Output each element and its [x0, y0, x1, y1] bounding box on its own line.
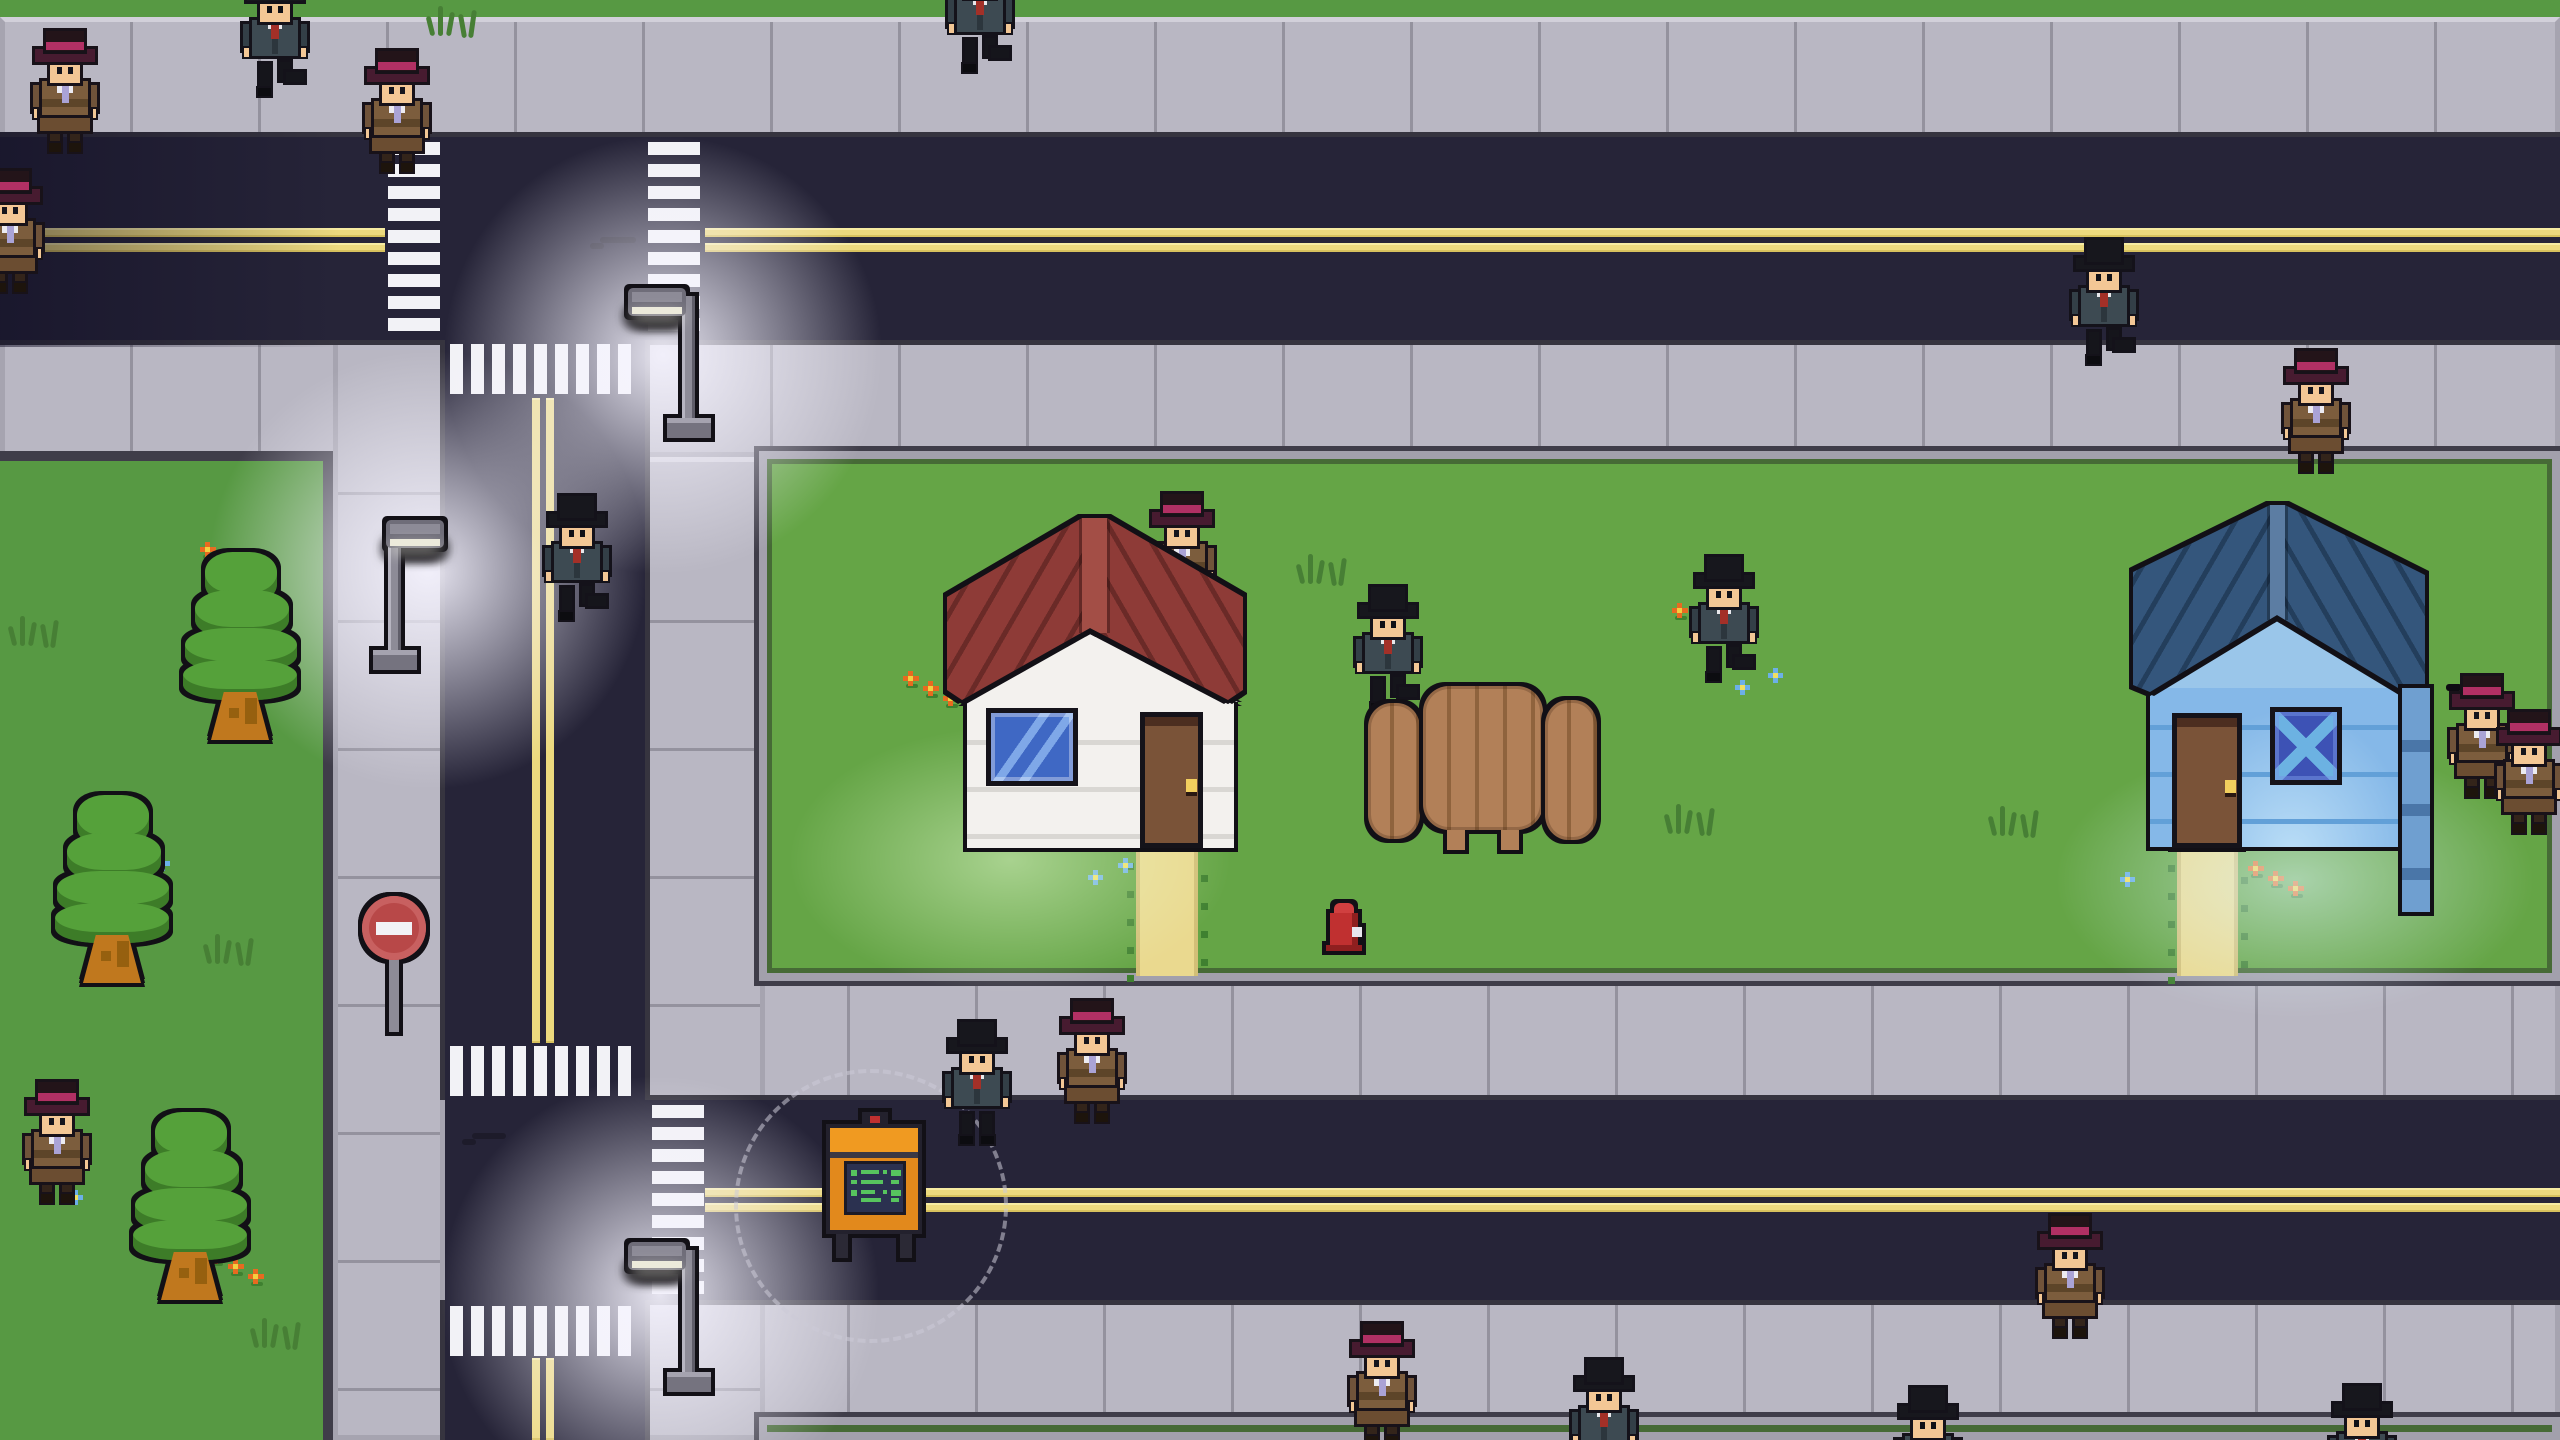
crosswalk-stripe: [576, 344, 589, 394]
flower-blue: [1768, 668, 1783, 683]
path-dot: [2168, 977, 2175, 984]
grass-tuft: [203, 928, 259, 968]
grass-tuft: [1988, 800, 2044, 840]
crosswalk-stripe: [555, 1046, 568, 1096]
screen-pixel: [883, 1170, 887, 1174]
npc-suit[interactable]: [2330, 1382, 2394, 1440]
lamp-pole: [682, 1250, 695, 1384]
grass: [759, 1417, 2560, 1440]
crosswalk-stripe: [471, 1306, 484, 1356]
npc-suit[interactable]: [2072, 236, 2136, 364]
crosswalk-stripe: [492, 344, 505, 394]
screen-pixel: [851, 1190, 857, 1196]
npc-suit[interactable]: [1896, 1384, 1960, 1440]
screen-pixel: [861, 1180, 883, 1184]
crosswalk-stripe: [388, 274, 440, 287]
crosswalk-stripe: [597, 344, 610, 394]
fire-hydrant: [1326, 903, 1362, 951]
grass-tuft: [8, 610, 64, 650]
crosswalk-stripe: [652, 1127, 704, 1140]
crosswalk-stripe: [513, 1046, 526, 1096]
street-lamp: [622, 1240, 752, 1390]
screen-pixel: [851, 1170, 857, 1176]
npc-trench-coat[interactable]: [1350, 1318, 1414, 1440]
npc-suit[interactable]: [1356, 583, 1420, 711]
npc-suit[interactable]: [945, 1018, 1009, 1146]
npc-trench-coat[interactable]: [2497, 706, 2560, 834]
board-screen: [847, 1164, 903, 1212]
crosswalk-stripe: [513, 1306, 526, 1356]
lamp-base: [667, 418, 711, 438]
crosswalk-stripe: [652, 1215, 704, 1228]
road-crack: [472, 1133, 506, 1139]
lamp-head: [628, 288, 686, 316]
road-crack: [590, 243, 604, 249]
crosswalk-stripe: [652, 1193, 704, 1206]
roof-ridge: [1082, 518, 1107, 633]
screen-pixel: [891, 1170, 901, 1176]
road-center-line: [705, 243, 2560, 252]
grass-tuft: [250, 1312, 306, 1352]
crosswalk-stripe: [648, 164, 700, 177]
lamp-base: [373, 650, 417, 670]
npc-suit[interactable]: [545, 492, 609, 620]
crosswalk-stripe: [576, 1046, 589, 1096]
road-center-line: [532, 398, 540, 1043]
crosswalk-stripe: [648, 186, 700, 199]
road-crack: [462, 1139, 476, 1145]
npc-trench-coat[interactable]: [25, 1076, 89, 1204]
npc-suit[interactable]: [1692, 553, 1756, 681]
stop-sign: [362, 896, 426, 1036]
npc-trench-coat[interactable]: [1060, 995, 1124, 1123]
crosswalk-stripe: [388, 186, 440, 199]
house-roof: [945, 510, 1257, 740]
crosswalk-stripe: [492, 1046, 505, 1096]
npc-suit[interactable]: [948, 0, 1012, 72]
crosswalk-stripe: [534, 344, 547, 394]
crosswalk-stripe: [648, 230, 700, 243]
npc-trench-coat[interactable]: [2038, 1210, 2102, 1338]
screen-pixel: [883, 1190, 887, 1194]
grass-tuft: [426, 0, 482, 40]
lamp-base: [667, 1372, 711, 1392]
crosswalk-stripe: [471, 1046, 484, 1096]
road-edge: [440, 1300, 445, 1440]
tree: [183, 552, 303, 742]
npc-suit[interactable]: [243, 0, 307, 96]
house-roof: [2128, 480, 2440, 710]
picnic-table: [1423, 686, 1543, 830]
npc-trench-coat[interactable]: [2284, 345, 2348, 473]
crosswalk-stripe: [652, 1105, 704, 1118]
crosswalk-stripe: [388, 252, 440, 265]
crosswalk-stripe: [513, 344, 526, 394]
crosswalk-stripe: [534, 1306, 547, 1356]
crosswalk-stripe: [471, 344, 484, 394]
crosswalk-stripe: [388, 230, 440, 243]
board-header: [830, 1128, 918, 1158]
crosswalk-stripe: [597, 1306, 610, 1356]
path-dot: [2241, 961, 2248, 968]
picnic-bench: [1368, 703, 1420, 839]
crosswalk-stripe: [388, 296, 440, 309]
screen-pixel: [891, 1190, 901, 1196]
road-edge: [0, 340, 445, 345]
road-edge: [440, 345, 445, 1100]
roof-ridge: [2270, 505, 2285, 620]
street-lamp: [622, 286, 752, 436]
npc-suit[interactable]: [1572, 1356, 1636, 1440]
crosswalk-stripe: [555, 1306, 568, 1356]
crosswalk-stripe: [648, 252, 700, 265]
road-edge: [645, 340, 2560, 345]
street-lamp: [328, 518, 458, 668]
crosswalk-stripe: [618, 1046, 631, 1096]
crosswalk-stripe: [450, 1046, 463, 1096]
screen-pixel: [861, 1190, 875, 1194]
tree: [55, 795, 175, 985]
grass-tuft: [1664, 798, 1720, 838]
screen-pixel: [861, 1170, 879, 1174]
lamp-head: [628, 1242, 686, 1270]
road-edge: [645, 345, 650, 1100]
crosswalk-stripe: [388, 318, 440, 331]
lamp-head: [386, 520, 444, 548]
road-center-line: [0, 228, 385, 237]
lamp-light-tube: [632, 307, 682, 314]
crosswalk-stripe: [597, 1046, 610, 1096]
grass-tuft: [1296, 548, 1352, 588]
crosswalk-stripe: [450, 344, 463, 394]
road-center-line: [532, 1358, 540, 1440]
npc-trench-coat[interactable]: [365, 45, 429, 173]
crosswalk-stripe: [652, 1171, 704, 1184]
tree: [133, 1112, 253, 1302]
crosswalk-stripe: [576, 1306, 589, 1356]
lamp-pole: [682, 296, 695, 430]
house-red: [945, 510, 1257, 990]
crosswalk-stripe: [492, 1306, 505, 1356]
screen-pixel: [891, 1198, 899, 1202]
npc-trench-coat[interactable]: [0, 165, 42, 293]
crosswalk-stripe: [388, 208, 440, 221]
road-center-line: [705, 228, 2560, 237]
grass: [0, 0, 2560, 17]
crosswalk-stripe: [450, 1306, 463, 1356]
npc-trench-coat[interactable]: [33, 25, 97, 153]
crosswalk-stripe: [648, 142, 700, 155]
game-viewport: [0, 0, 2560, 1440]
crosswalk-stripe: [555, 344, 568, 394]
screen-pixel: [851, 1180, 857, 1184]
board-body: [826, 1124, 922, 1234]
road-center-line: [0, 243, 385, 252]
screen-pixel: [861, 1198, 881, 1202]
crosswalk-stripe: [652, 1149, 704, 1162]
lamp-light-tube: [632, 1261, 682, 1268]
downspout: [2402, 688, 2430, 912]
info-board[interactable]: [826, 1112, 922, 1260]
flower-blue: [1735, 680, 1750, 695]
lamp-light-tube: [390, 539, 440, 546]
lamp-pole: [388, 528, 401, 662]
screen-pixel: [891, 1180, 899, 1184]
picnic-bench: [1545, 700, 1597, 840]
sidewalk: [333, 340, 445, 1440]
house-blue: [2128, 480, 2440, 960]
road-center-line: [546, 1358, 554, 1440]
crosswalk-stripe: [648, 208, 700, 221]
crosswalk-stripe: [534, 1046, 547, 1096]
road-crack: [600, 237, 636, 243]
